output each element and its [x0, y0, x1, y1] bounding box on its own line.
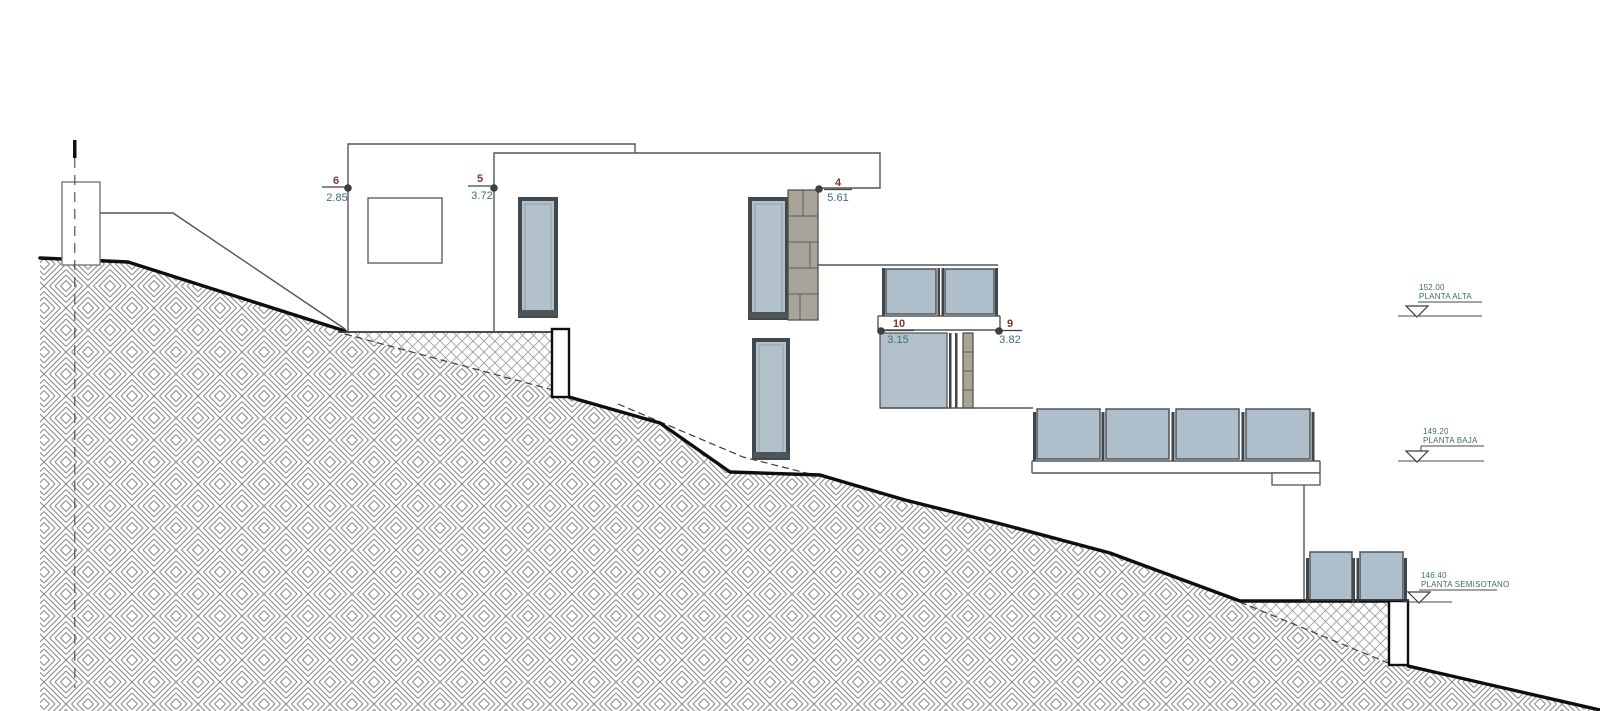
door-frame-line: [955, 333, 958, 408]
level-elevation: 152.00: [1419, 283, 1445, 292]
glass-panel: [1310, 552, 1352, 600]
level-elevation: 149.20: [1423, 427, 1449, 436]
glass-panel: [1176, 409, 1239, 459]
dim-number: 10: [893, 318, 905, 330]
window-mid-level: [753, 340, 789, 458]
retaining-wall-upper: [552, 329, 569, 397]
level-elevation-label: PLANTA SEMISOTANO: [1421, 580, 1509, 589]
railing-post: [1172, 412, 1175, 461]
dim-point: [877, 327, 885, 335]
level-marker-planta-semisotano: 146.40 PLANTA SEMISOTANO: [1402, 571, 1509, 603]
railing-post: [1404, 558, 1407, 602]
roof-box: [368, 198, 442, 263]
stone-column-upper: [788, 190, 818, 320]
railing-post: [1242, 412, 1245, 461]
railing-post: [1312, 412, 1315, 461]
glass-panel: [1246, 409, 1310, 459]
level-marker-planta-baja: 149.20 PLANTA BAJA: [1398, 427, 1484, 462]
stone-post-lower: [963, 333, 973, 408]
glass-panel: [1360, 552, 1403, 600]
window-upper-right: [749, 199, 788, 318]
section-drawing: 6 2.85 5 3.72 4 5.61 10 3.15 9 3.82: [0, 0, 1600, 711]
dim-number: 4: [835, 177, 842, 189]
dim-value: 3.72: [471, 190, 492, 202]
railing-post: [995, 268, 998, 316]
dim-point: [344, 184, 352, 192]
glass-panel: [886, 269, 936, 314]
lower-railing: [1303, 552, 1409, 602]
level-elevation-label: PLANTA ALTA: [1419, 292, 1472, 301]
chimney-top-tick: [73, 140, 77, 158]
dim-number: 6: [333, 175, 339, 187]
dim-marker-4: 4 5.61: [815, 177, 852, 204]
dim-value: 3.82: [999, 334, 1020, 346]
chimney-body: [62, 182, 100, 265]
railing-post: [1353, 558, 1356, 602]
upper-balcony: [818, 265, 1000, 330]
level-arrow-icon: [1406, 306, 1428, 317]
level-markers: 152.00 PLANTA ALTA 149.20 PLANTA BAJA 14…: [1398, 283, 1509, 603]
railing-post: [882, 268, 885, 316]
level-arrow-icon: [1406, 451, 1428, 462]
railing-post: [1102, 412, 1105, 461]
glass-panel: [945, 269, 994, 314]
railing-post: [938, 268, 941, 316]
section-drawing-canvas: 6 2.85 5 3.72 4 5.61 10 3.15 9 3.82: [0, 0, 1600, 711]
level-elevation-label: PLANTA BAJA: [1423, 436, 1478, 445]
railing-post: [1306, 558, 1309, 602]
door-frame-line: [949, 333, 952, 408]
glass-panel: [1037, 409, 1100, 459]
level-elevation: 146.40: [1421, 571, 1447, 580]
glass-panel: [1106, 409, 1169, 459]
dim-value: 3.15: [887, 334, 908, 346]
dim-point: [815, 185, 823, 193]
level-marker-planta-alta: 152.00 PLANTA ALTA: [1398, 283, 1482, 317]
dim-number: 5: [477, 173, 483, 185]
railing-post: [1357, 558, 1360, 602]
railing-post: [1033, 412, 1036, 461]
window-upper-left: [519, 199, 557, 316]
dim-number: 9: [1007, 318, 1013, 330]
dim-marker-9: 9 3.82: [995, 318, 1022, 346]
dim-value: 5.61: [827, 192, 848, 204]
railing-post: [942, 268, 945, 316]
terrain: [40, 258, 1600, 711]
walkway-step-block: [1272, 473, 1320, 485]
dim-value: 2.85: [326, 192, 347, 204]
retaining-wall-lower: [1389, 601, 1408, 665]
level-arrow-icon: [1408, 592, 1430, 603]
